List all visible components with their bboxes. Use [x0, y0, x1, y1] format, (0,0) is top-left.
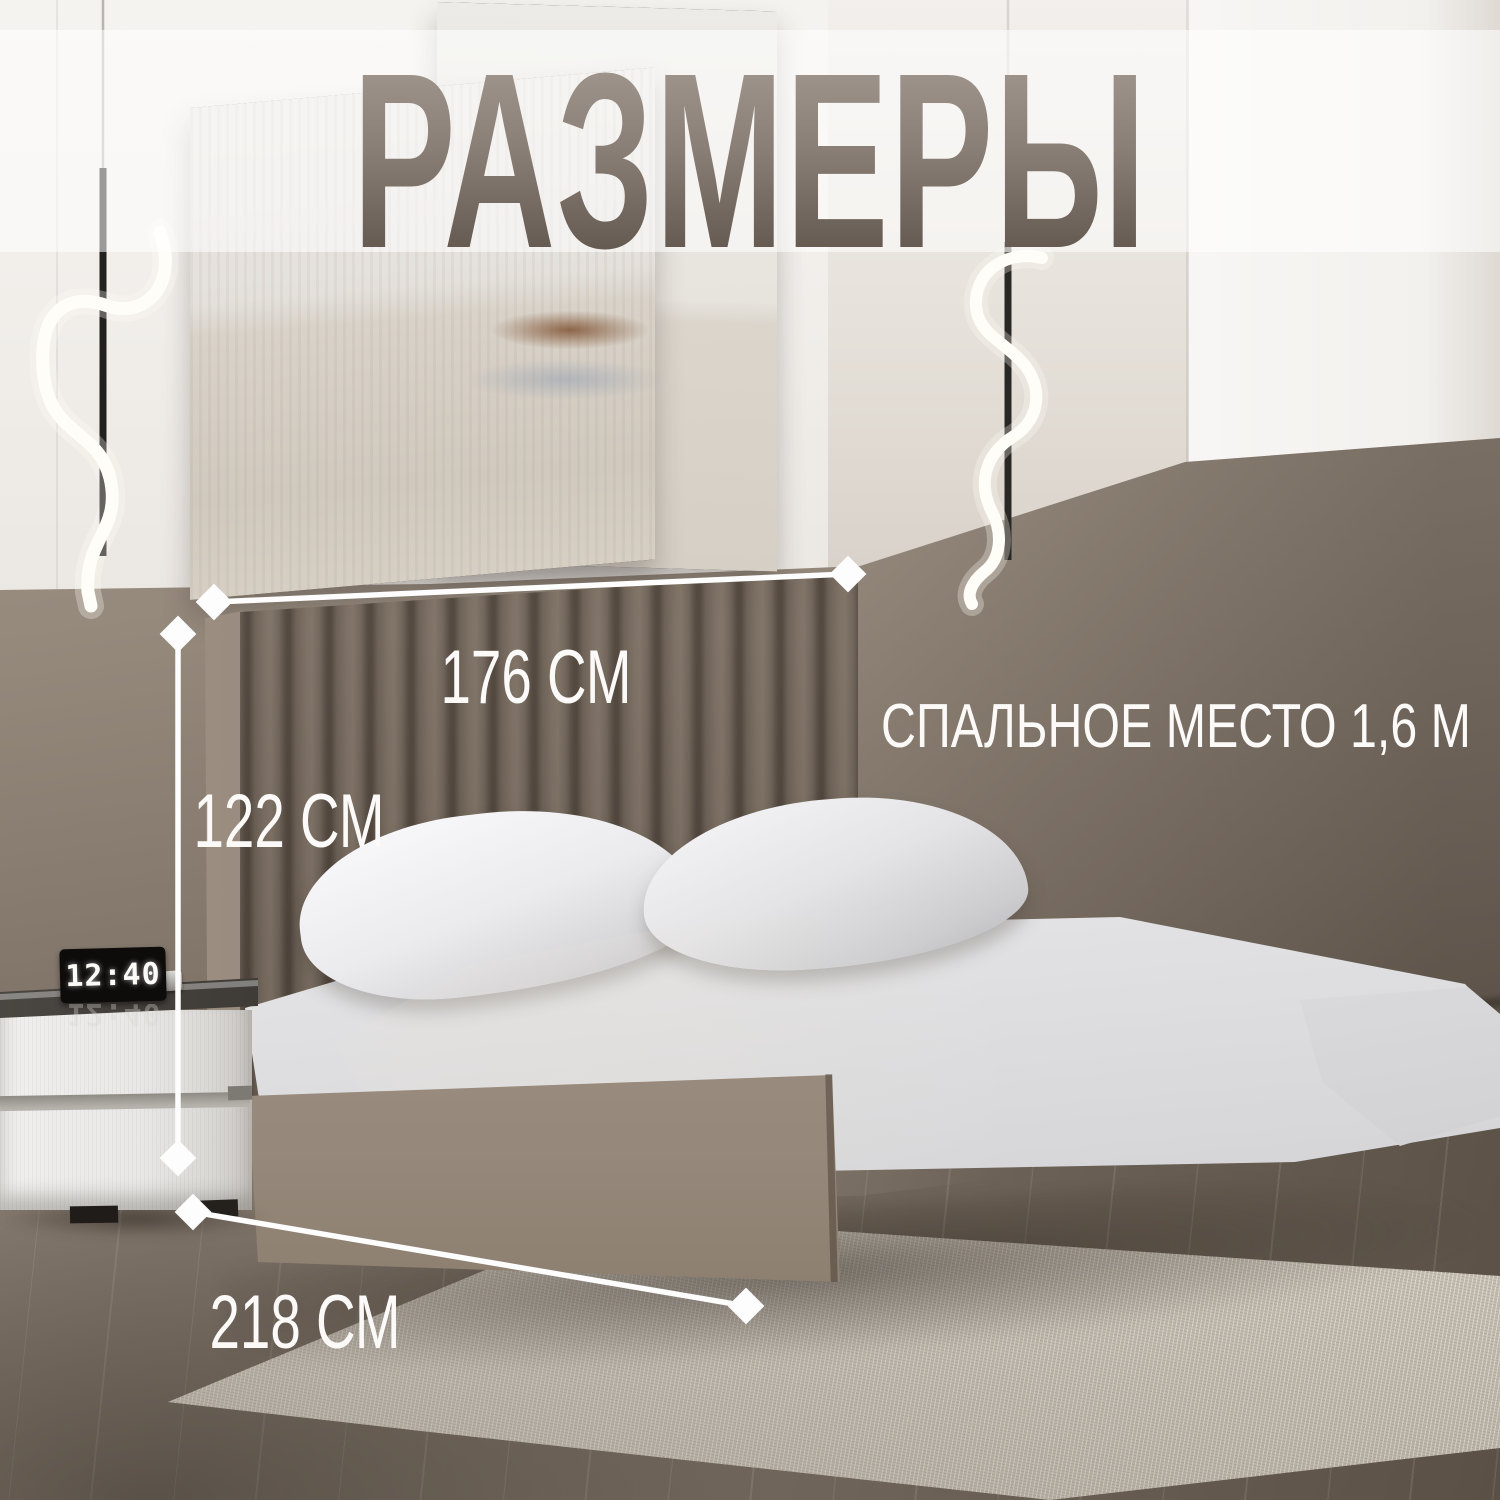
bedroom-size-infographic: 12:40 12:40 РАЗМЕРЫ 176 СМ 122 СМ 218 СМ…	[0, 0, 1500, 1500]
nightstand-drawer-notch	[228, 1086, 252, 1101]
nightstand-foot	[196, 1199, 239, 1217]
digital-clock: 12:40	[59, 947, 166, 1004]
nightstand-foot	[70, 1206, 118, 1224]
wall-art-rust-stroke	[470, 300, 670, 360]
width-dimension-label: 176 СМ	[441, 640, 632, 716]
clock-reflection: 12:40	[62, 1004, 166, 1028]
sleeping-area-label: СПАЛЬНОЕ МЕСТО 1,6 М	[881, 696, 1471, 758]
wall-art-haze-stroke	[455, 352, 675, 407]
page-title: РАЗМЕРЫ	[352, 36, 1147, 286]
length-dimension-label: 218 СМ	[210, 1285, 401, 1361]
height-dimension-label: 122 СМ	[194, 784, 385, 860]
clock-time: 12:40	[65, 956, 161, 993]
